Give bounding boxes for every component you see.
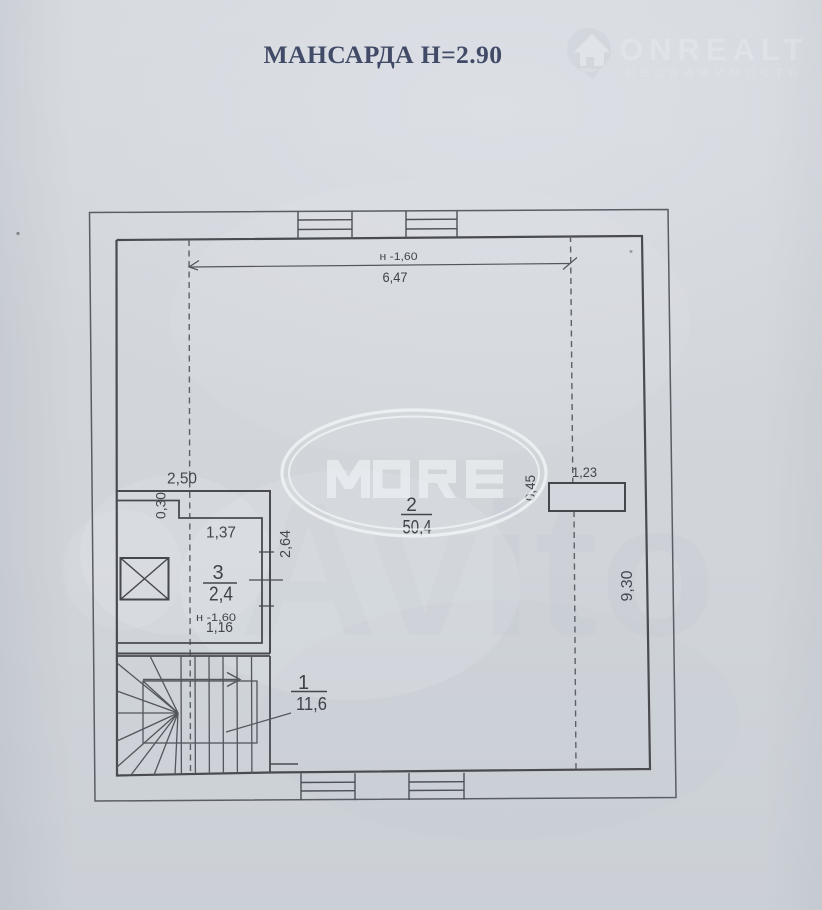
svg-text:2,4: 2,4 bbox=[209, 584, 233, 606]
svg-text:НЕДВИЖИМОСТЬ: НЕДВИЖИМОСТЬ bbox=[626, 65, 803, 80]
svg-text:1,23: 1,23 bbox=[572, 464, 597, 480]
svg-text:11,6: 11,6 bbox=[296, 694, 327, 714]
svg-text:2,50: 2,50 bbox=[167, 471, 197, 488]
svg-text:2: 2 bbox=[406, 495, 417, 516]
svg-text:0,30: 0,30 bbox=[153, 492, 169, 519]
svg-text:1,37: 1,37 bbox=[206, 525, 236, 542]
svg-text:2,64: 2,64 bbox=[278, 530, 294, 558]
svg-text:ONREALT: ONREALT bbox=[619, 32, 809, 67]
svg-text:1,16: 1,16 bbox=[206, 619, 233, 636]
svg-text:МАНСАРДА Н=2.90: МАНСАРДА Н=2.90 bbox=[264, 40, 503, 69]
svg-text:1: 1 bbox=[298, 672, 309, 694]
svg-text:3: 3 bbox=[212, 562, 223, 584]
svg-text:6,47: 6,47 bbox=[383, 270, 408, 285]
svg-text:н -1,60: н -1,60 bbox=[380, 251, 418, 263]
svg-text:9,30: 9,30 bbox=[619, 570, 636, 601]
